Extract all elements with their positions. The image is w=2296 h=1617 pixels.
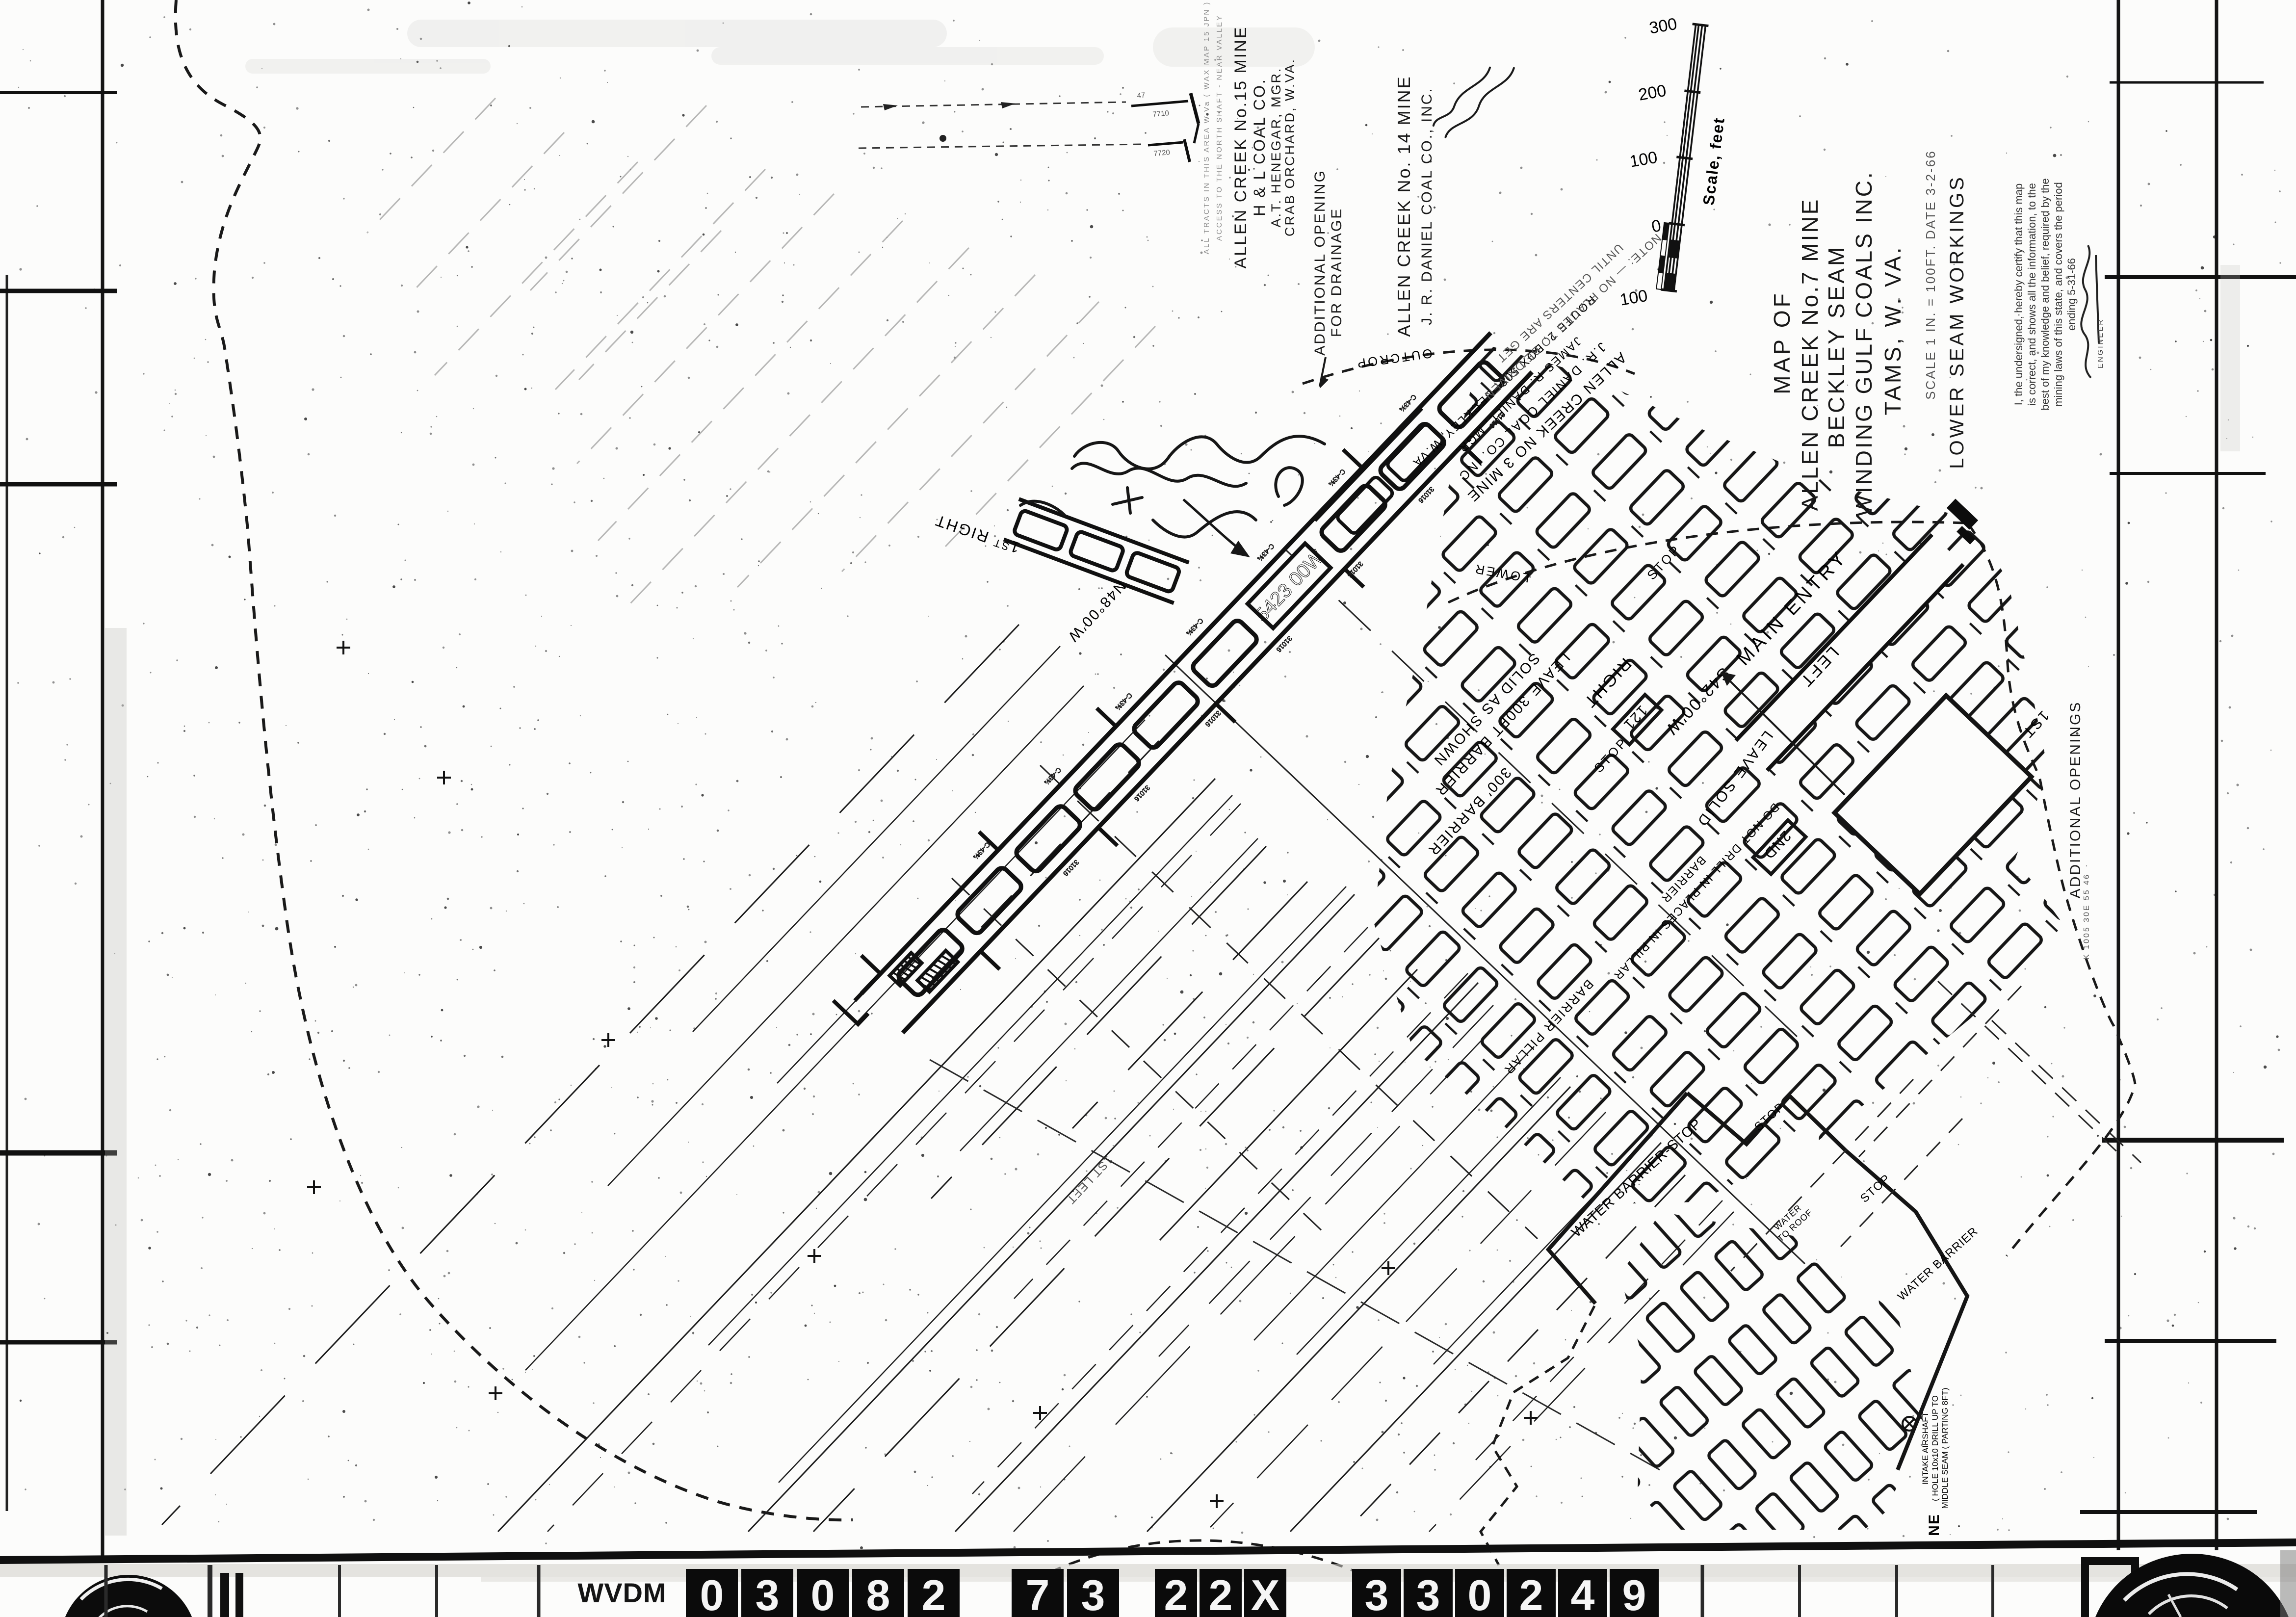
svg-text:0: 0 [1468,1571,1492,1617]
svg-text:ENGINEER: ENGINEER [2096,318,2105,368]
svg-text:NE: NE [1926,1513,1942,1536]
svg-text:0: 0 [811,1571,835,1617]
svg-text:( HOLE 10x10 DRILL UP TO: ( HOLE 10x10 DRILL UP TO [1931,1395,1940,1501]
svg-text:H & L COAL CO.: H & L COAL CO. [1251,78,1268,216]
svg-text:X: X [1251,1571,1280,1617]
svg-text:47: 47 [1137,91,1146,100]
svg-text:ending 5-31-66: ending 5-31-66 [2065,258,2078,331]
svg-text:ADDITIONAL OPENING: ADDITIONAL OPENING [1312,169,1328,356]
svg-text:K 1005 30E 55 46: K 1005 30E 55 46 [2083,873,2091,960]
svg-text:ALLEN CREEK No.15 MINE: ALLEN CREEK No.15 MINE [1231,26,1250,269]
svg-text:ALLEN CREEK No.7 MINE: ALLEN CREEK No.7 MINE [1797,198,1823,511]
svg-text:best of my knowledge and belie: best of my knowledge and belief, require… [2039,178,2051,410]
svg-text:3: 3 [1416,1571,1440,1617]
svg-text:ACCESS TO THE NORTH SHAFT - NE: ACCESS TO THE NORTH SHAFT - NEAR VALLEY [1215,14,1224,241]
svg-text:SCALE 1 IN. = 100FT. DAT: SCALE 1 IN. = 100FT. DATE 3-2-66 [1923,150,1938,400]
svg-text:ALLEN CREEK No. 14 MINE: ALLEN CREEK No. 14 MINE [1394,75,1414,337]
svg-text:7720: 7720 [1153,148,1171,158]
svg-text:7710: 7710 [1152,109,1170,119]
svg-text:FOR DRAINAGE: FOR DRAINAGE [1329,208,1345,337]
svg-text:I, the undersigned, hereby cer: I, the undersigned, hereby certify that … [2012,183,2025,405]
svg-text:9: 9 [1622,1571,1646,1617]
svg-text:2: 2 [1164,1571,1188,1617]
svg-text:is correct, and shows all the: is correct, and shows all the informatio… [2026,183,2038,406]
svg-text:WINDING GULF COALS INC.: WINDING GULF COALS INC. [1851,170,1877,516]
svg-text:8: 8 [866,1571,890,1617]
svg-text:INTAKE AIRSHAFT: INTAKE AIRSHAFT [1921,1412,1930,1485]
svg-text:0: 0 [700,1571,724,1617]
svg-text:MIDDLE SEAM ( PARTING 8FT): MIDDLE SEAM ( PARTING 8FT) [1940,1388,1950,1509]
svg-text:WVDM: WVDM [577,1577,666,1608]
svg-text:MAP OF: MAP OF [1769,290,1795,394]
svg-text:2: 2 [922,1571,946,1617]
svg-text:BECKLEY SEAM: BECKLEY SEAM [1824,245,1849,448]
svg-text:TAMS, W. VA.: TAMS, W. VA. [1880,245,1905,415]
svg-text:7: 7 [1026,1571,1050,1617]
svg-text:ALL TRACTS IN THIS AREA W.Va (: ALL TRACTS IN THIS AREA W.Va ( WAX MAP 1… [1202,1,1211,254]
svg-text:A.T. HENEGAR, MGR.: A.T. HENEGAR, MGR. [1269,67,1283,227]
svg-text:4: 4 [1571,1571,1595,1617]
svg-text:2: 2 [1209,1571,1233,1617]
svg-text:mining laws of this state, and: mining laws of this state, and covers th… [2052,182,2064,406]
svg-text:3: 3 [756,1571,780,1617]
svg-text:3: 3 [1081,1571,1105,1617]
svg-text:2: 2 [1519,1571,1543,1617]
svg-text:3: 3 [1365,1571,1389,1617]
svg-text:J. R. DANIEL COAL CO., INC.: J. R. DANIEL COAL CO., INC. [1419,87,1435,325]
svg-text:LOWER SEAM WORKINGS: LOWER SEAM WORKINGS [1946,175,1968,469]
svg-text:CRAB ORCHARD, W.VA.: CRAB ORCHARD, W.VA. [1282,58,1297,236]
svg-text:ADDITIONAL OPENINGS: ADDITIONAL OPENINGS [2067,701,2084,899]
